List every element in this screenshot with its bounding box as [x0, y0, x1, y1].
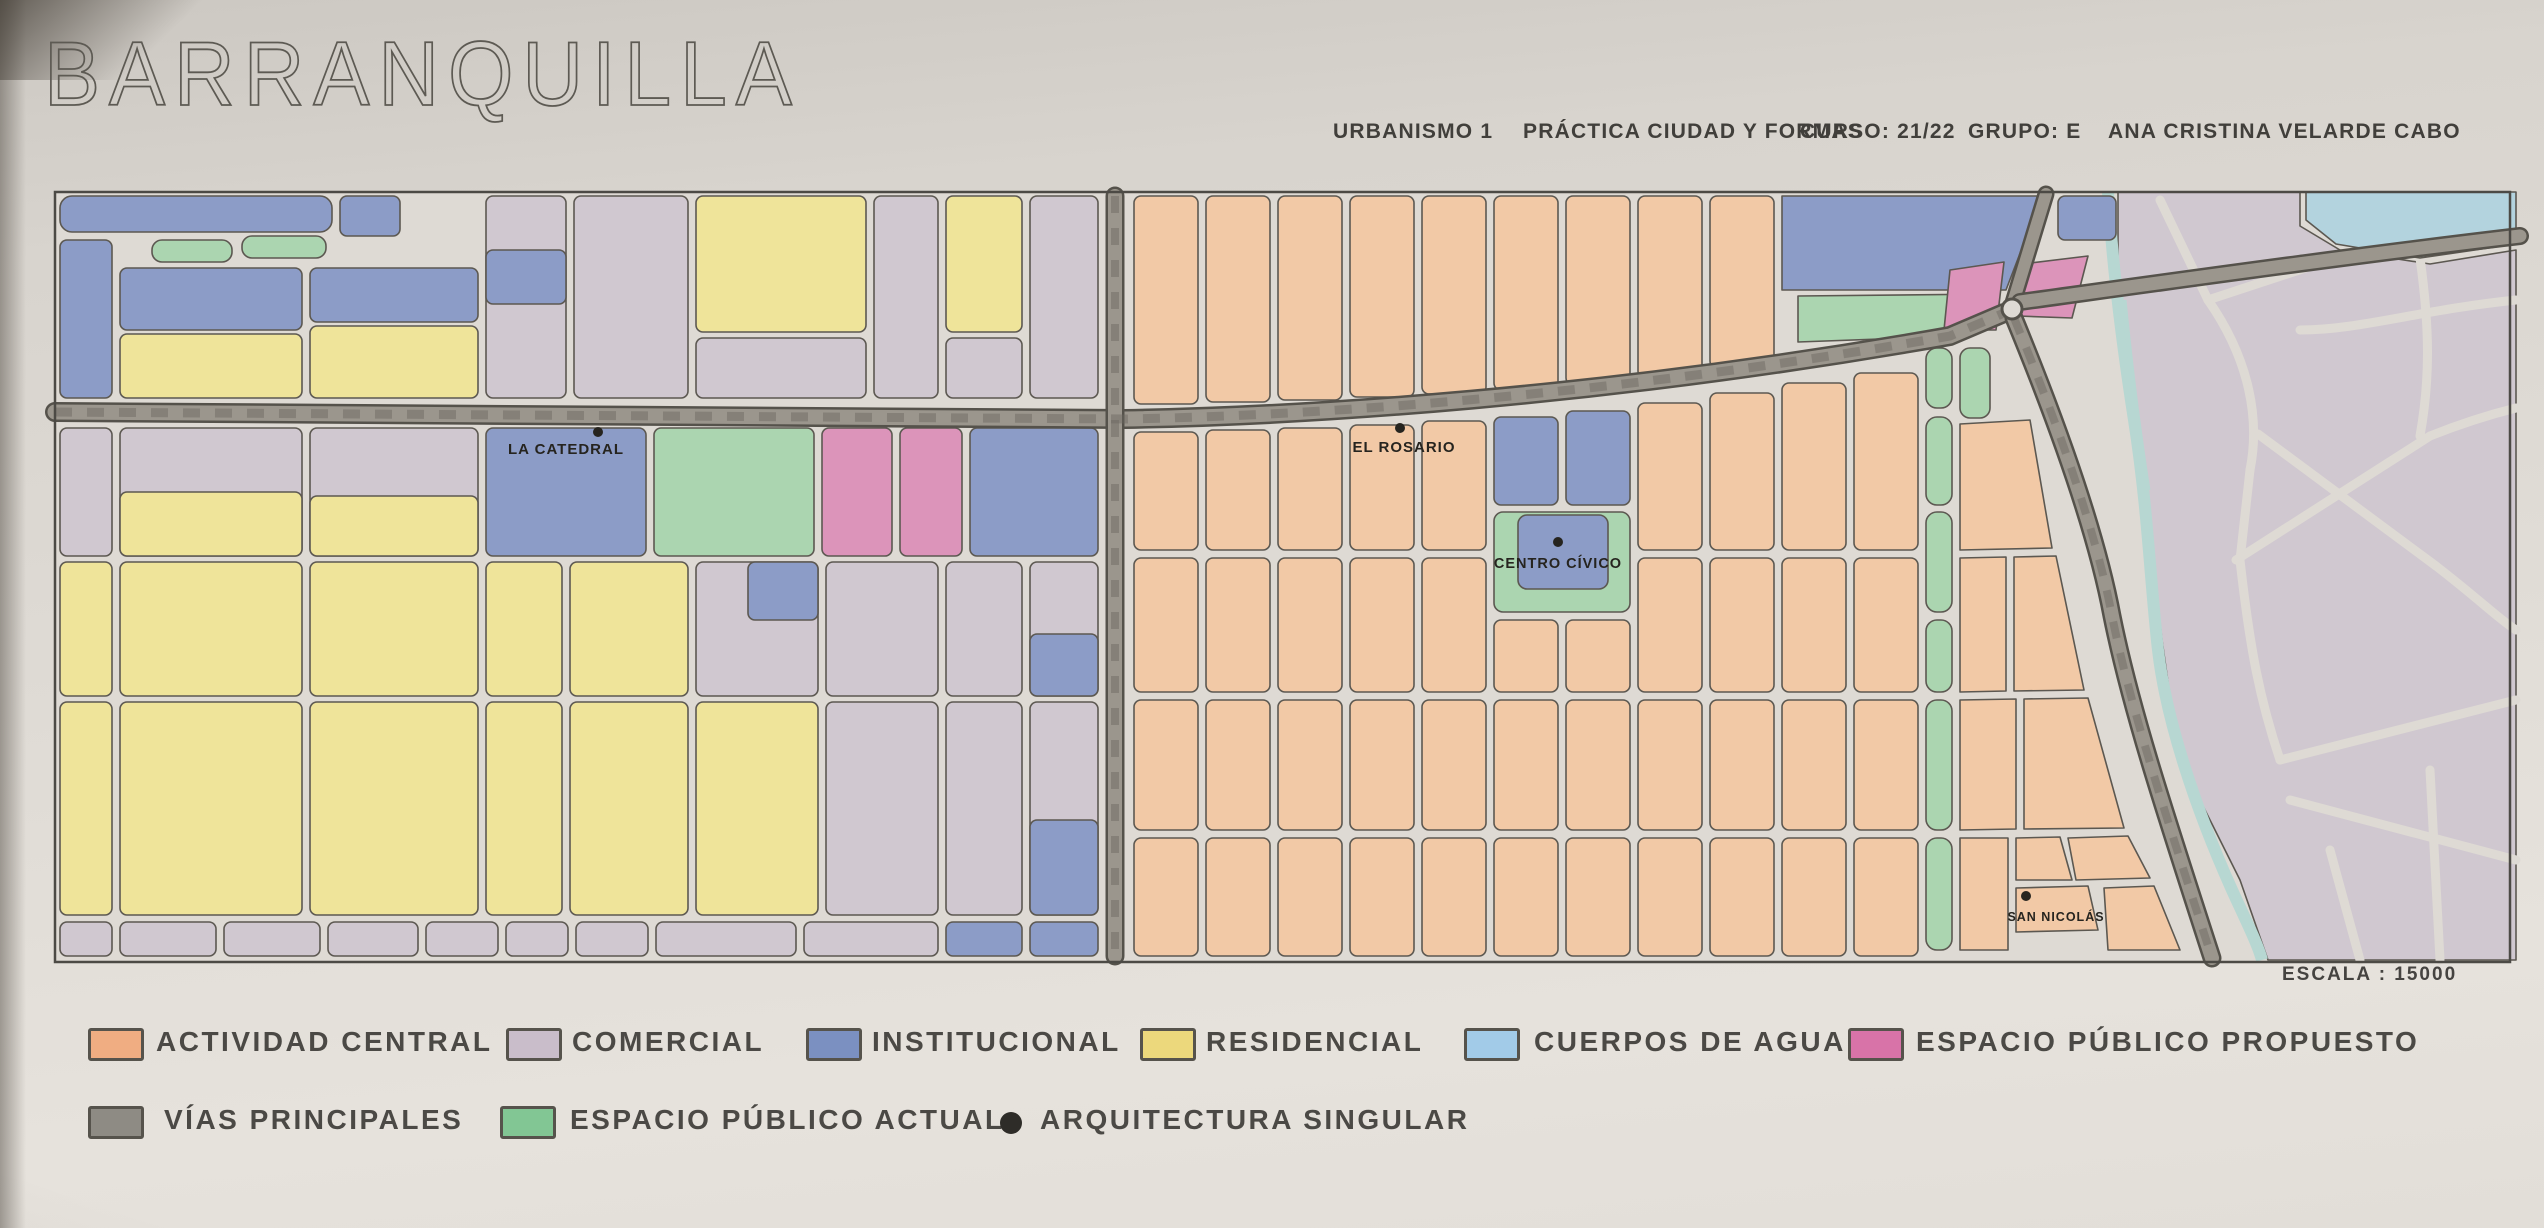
- legend-label: ARQUITECTURA SINGULAR: [1040, 1104, 1469, 1136]
- roundabout: [2002, 299, 2022, 319]
- legend-dot-marker: [1000, 1112, 1022, 1134]
- legend-label: RESIDENCIAL: [1206, 1026, 1423, 1058]
- legend-label: INSTITUCIONAL: [872, 1026, 1121, 1058]
- legend-swatch-cuerpos-de-agua: [1464, 1028, 1520, 1061]
- legend-swatch-institucional: [806, 1028, 862, 1061]
- legend-label: ESPACIO PÚBLICO PROPUESTO: [1916, 1026, 2419, 1058]
- landmark-label: LA CATEDRAL: [508, 441, 624, 458]
- landmark-dot: [1553, 537, 1563, 547]
- scale-label: ESCALA : 15000: [2282, 964, 2457, 986]
- legend-swatch-espacio-publico-propuesto: [1848, 1028, 1904, 1061]
- landmark-dot: [1395, 423, 1405, 433]
- photo-of-drawing: BARRANQUILLA URBANISMO 1 PRÁCTICA CIUDAD…: [0, 0, 2544, 1228]
- landmark-dot: [593, 427, 603, 437]
- landmark-dot: [2021, 891, 2031, 901]
- legend-label: ACTIVIDAD CENTRAL: [156, 1026, 493, 1058]
- landmark-label: CENTRO CÍVICO: [1494, 555, 1622, 572]
- legend-swatch-espacio-publico-actual: [500, 1106, 556, 1139]
- landmark-label: SAN NICOLÁS: [2007, 909, 2104, 924]
- legend-swatch-residencial: [1140, 1028, 1196, 1061]
- legend-label: VÍAS PRINCIPALES: [164, 1104, 463, 1136]
- legend-label: COMERCIAL: [572, 1026, 764, 1058]
- legend-swatch-vias-principales: [88, 1106, 144, 1139]
- landmark-label: EL ROSARIO: [1352, 439, 1455, 456]
- legend-label: ESPACIO PÚBLICO ACTUAL: [570, 1104, 1005, 1136]
- legend-label: CUERPOS DE AGUA: [1534, 1026, 1846, 1058]
- legend-swatch-comercial: [506, 1028, 562, 1061]
- legend-swatch-actividad-central: [88, 1028, 144, 1061]
